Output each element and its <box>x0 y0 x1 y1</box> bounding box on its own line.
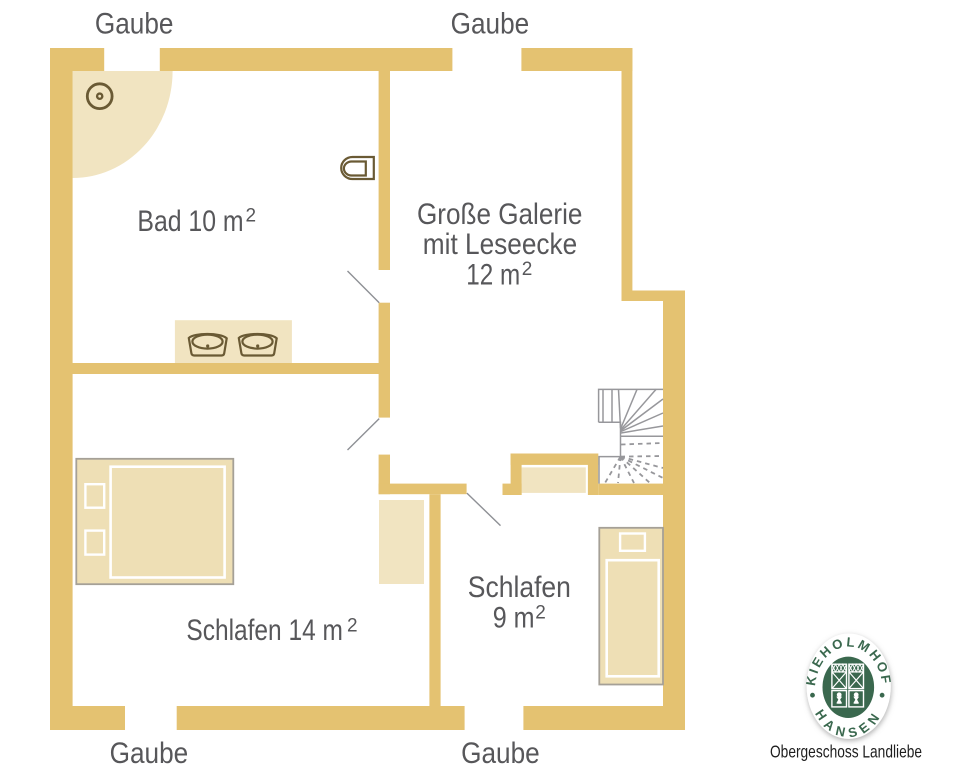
svg-text:Gaube: Gaube <box>451 7 530 40</box>
svg-text:12 m: 12 m <box>466 258 520 291</box>
svg-text:2: 2 <box>535 602 546 623</box>
svg-text:Obergeschoss Landliebe: Obergeschoss Landliebe <box>770 741 922 761</box>
svg-text:Schlafen 14 m: Schlafen 14 m <box>186 614 343 647</box>
svg-text:2: 2 <box>347 615 358 636</box>
svg-text:Gaube: Gaube <box>461 737 540 768</box>
svg-text:mit Leseecke: mit Leseecke <box>423 228 577 261</box>
svg-text:2: 2 <box>522 259 533 280</box>
svg-text:Große Galerie: Große Galerie <box>417 198 582 231</box>
svg-text:Bad 10 m: Bad 10 m <box>137 205 243 238</box>
svg-text:Gaube: Gaube <box>95 7 174 40</box>
svg-text:Schlafen: Schlafen <box>468 571 571 604</box>
svg-text:9 m: 9 m <box>493 601 535 634</box>
svg-text:Gaube: Gaube <box>110 737 189 768</box>
svg-text:2: 2 <box>246 206 257 227</box>
